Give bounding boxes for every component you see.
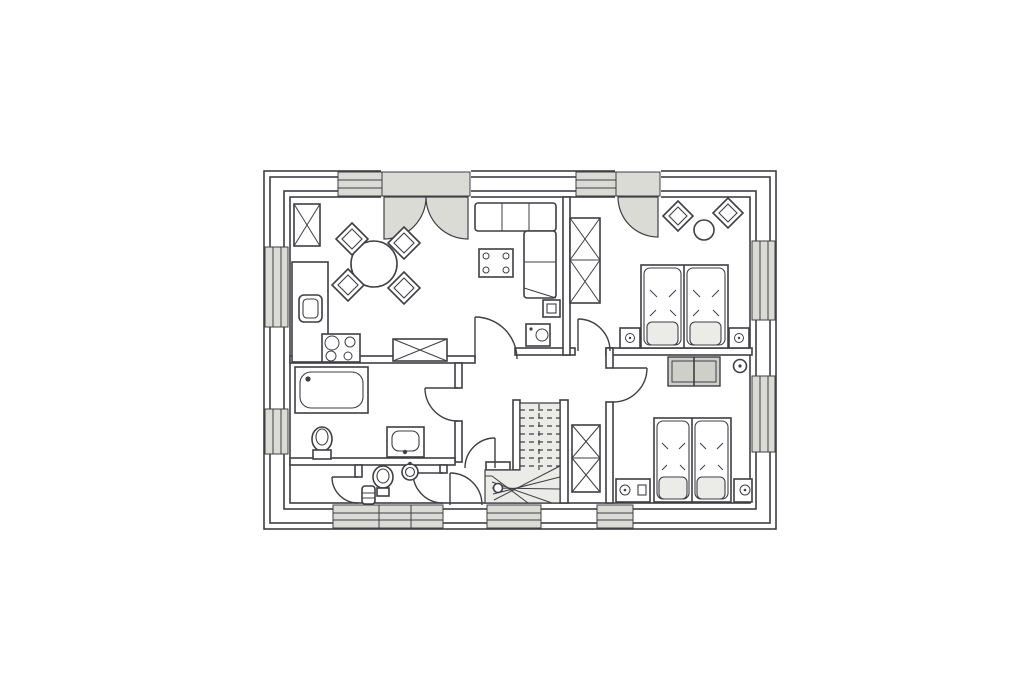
door-bedroom-1 <box>578 319 610 351</box>
room-living-dining-kitchen <box>292 203 560 362</box>
toilet-bathroom <box>312 427 332 459</box>
window-bottom-bedroom-2 <box>597 505 633 528</box>
floor-plan-page <box>0 0 1024 683</box>
nightstand-bed1-left <box>620 328 640 348</box>
floor-plan-drawing <box>0 0 1024 683</box>
room-bathroom <box>295 367 424 459</box>
door-bedroom-2 <box>613 368 647 402</box>
door-storage <box>332 477 358 503</box>
window-left-kitchen <box>265 247 288 327</box>
wall-lamp <box>734 360 747 373</box>
bedroom-1-side-table <box>694 220 714 240</box>
room-hall <box>485 403 600 503</box>
dresser <box>668 357 720 386</box>
nightstand-bed2-right <box>734 479 752 502</box>
double-bed-2 <box>654 418 731 502</box>
tv-square <box>543 300 560 317</box>
door-hall-bottom <box>450 473 482 505</box>
nightstand-bed1-right <box>729 328 749 348</box>
tall-cabinet <box>294 204 320 246</box>
room-bedroom-2 <box>616 357 752 502</box>
cooktop <box>322 334 360 362</box>
washbasin-bathroom <box>387 427 424 457</box>
room-wc <box>362 462 418 504</box>
sideboard <box>393 339 447 361</box>
hall-closet <box>572 425 600 492</box>
small-cabinet-wc <box>362 486 375 504</box>
nightstand-bed2-left <box>616 479 650 502</box>
staircase <box>485 403 560 503</box>
toilet-wc <box>373 466 393 496</box>
door-living-to-hall <box>475 317 517 359</box>
terrace-double-door <box>381 169 471 239</box>
window-right-bedroom-1 <box>752 241 775 320</box>
wardrobe-bedroom-1 <box>570 218 600 303</box>
window-bottom-storage <box>333 505 379 528</box>
stair-newel <box>494 484 503 493</box>
bathtub <box>295 367 368 413</box>
window-top-sidelight-living <box>338 172 382 196</box>
door-wc <box>413 473 443 503</box>
kitchen-sink <box>299 295 322 322</box>
window-left-bathroom <box>265 409 288 454</box>
double-bed-1 <box>641 265 728 348</box>
coffee-table <box>479 249 513 277</box>
window-bottom-hall <box>487 505 541 528</box>
window-bottom-wc <box>379 505 443 528</box>
window-top-sidelight-bedroom-1 <box>576 172 616 196</box>
media-unit <box>526 324 550 346</box>
door-bathroom <box>425 388 458 421</box>
window-right-bedroom-2 <box>752 376 775 452</box>
balcony-door-bedroom-1 <box>615 169 661 237</box>
